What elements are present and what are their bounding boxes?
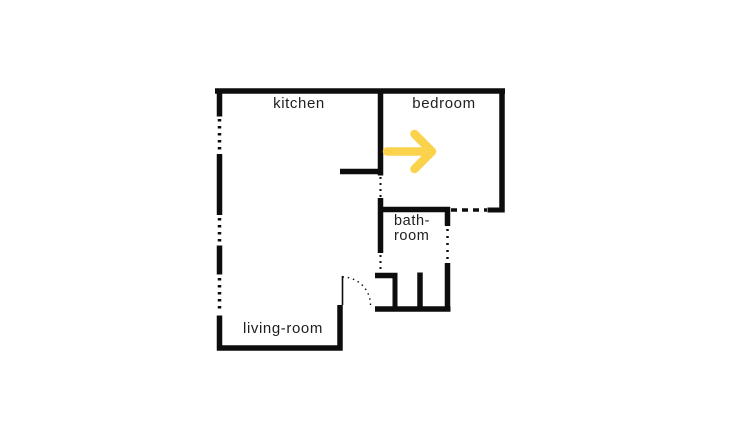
bathroom-label-line1: bath-: [394, 214, 430, 229]
living-room-label: living-room: [233, 321, 333, 336]
walls: [215, 89, 505, 351]
floor-plan-drawing: [0, 0, 750, 422]
right-arrow-icon: [387, 134, 432, 169]
door-swing-arc-icon: [343, 277, 371, 305]
entry-door: [343, 276, 371, 305]
kitchen-label: kitchen: [249, 96, 349, 111]
floor-plan: kitchen bedroom bath- room living-room: [0, 0, 750, 422]
bedroom-label: bedroom: [394, 96, 494, 111]
bathroom-label: bath- room: [394, 214, 430, 243]
bathroom-label-line2: room: [394, 229, 430, 244]
